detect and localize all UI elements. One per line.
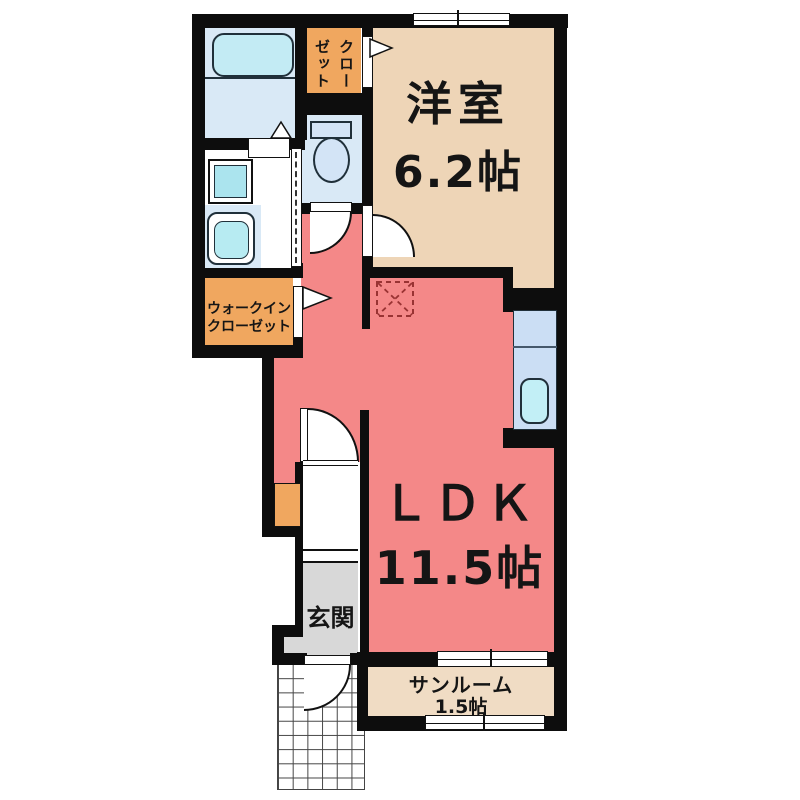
bathroom-door-panel <box>248 138 290 158</box>
window-western-top <box>413 13 510 26</box>
wic-door-arrow-icon <box>301 285 333 311</box>
window-tick-ldk <box>490 649 492 667</box>
wall-kitchen-bottom <box>503 428 557 448</box>
ldk-label: ＬＤＫ <box>362 464 557 534</box>
bathroom-door-arrow-icon <box>268 120 294 140</box>
bathtub <box>212 33 294 77</box>
floor-plan: 洋室 6.2帖 ＬＤＫ 11.5帖 サンルーム 1.5帖 玄関 ウォークイン ク… <box>0 0 800 800</box>
entrance-step <box>303 549 358 551</box>
entrance-label: 玄関 <box>303 598 358 633</box>
hallway-floor <box>303 462 358 549</box>
western-room-size: 6.2帖 <box>362 136 554 200</box>
wall-top <box>192 14 568 28</box>
window-tick-top <box>457 10 459 26</box>
entry-door-leaf <box>304 655 351 665</box>
closet-label: クロー ゼット <box>306 33 358 95</box>
kitchen-sink <box>520 378 549 424</box>
wall-wic-bottom <box>192 345 303 358</box>
wall-entrance-bottom-l <box>272 653 307 665</box>
bathroom-divider <box>205 77 295 79</box>
wall-ldk-left <box>262 357 274 537</box>
ldk-door-leaf <box>300 408 308 462</box>
window-ldk-sunroom <box>437 651 548 667</box>
closet-door-arrow-icon <box>368 37 394 59</box>
wall-closet-bottom <box>303 93 362 115</box>
wall-shoebox-bottom <box>262 527 303 537</box>
washing-machine <box>214 165 247 198</box>
vanity-basin <box>214 221 249 259</box>
kitchen-divider <box>513 346 557 348</box>
wall-western-bottom <box>362 267 503 278</box>
wall-kitchen-top <box>503 288 557 312</box>
toilet-bowl <box>313 137 350 183</box>
western-door-leaf <box>362 205 373 257</box>
western-room-label: 洋室 <box>362 68 554 134</box>
walk-in-closet-label: ウォークイン クローゼット <box>205 300 293 336</box>
refrigerator-space-icon <box>375 280 415 318</box>
sunroom-size: 1.5帖 <box>368 692 554 719</box>
ldk-size: 11.5帖 <box>362 532 557 598</box>
wall-left-upper <box>192 14 205 358</box>
toilet-door-leaf <box>310 202 352 212</box>
shoe-cabinet <box>274 483 301 527</box>
wall-washroom-bottom <box>192 268 303 278</box>
ldk-door-threshold <box>303 460 358 466</box>
washroom-sliding-door-dash <box>295 152 297 263</box>
wall-corridor-divider <box>362 272 370 329</box>
